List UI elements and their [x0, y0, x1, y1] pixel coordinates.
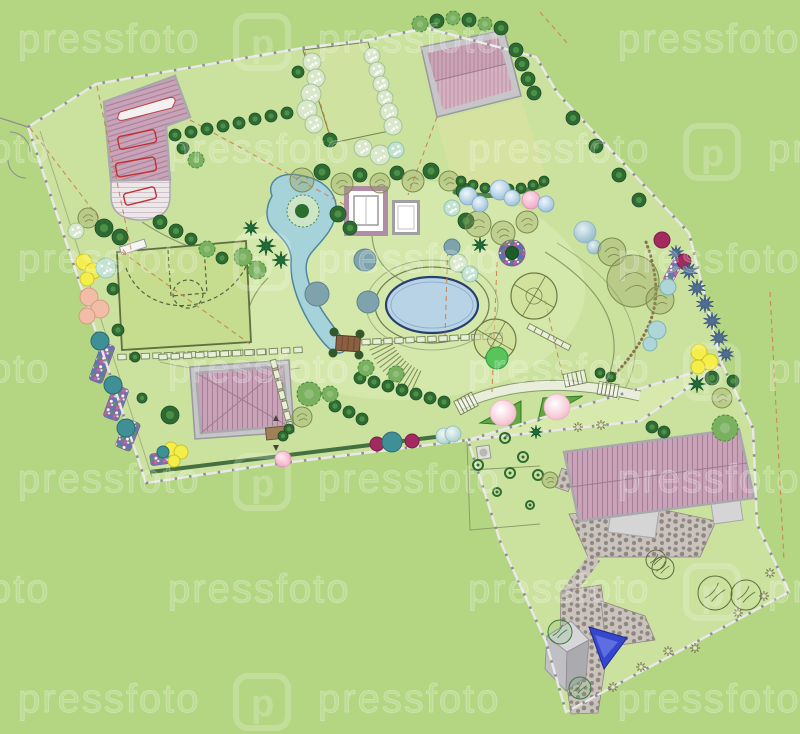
flora-con [153, 215, 167, 229]
flora-decid [712, 415, 738, 441]
stock-photo-landscape-plan: pressfotopressfotopressfotoppressfotopre… [0, 0, 800, 734]
flora-con [353, 168, 367, 182]
flora-con [112, 324, 124, 336]
watermark-text: pressfoto [168, 127, 351, 171]
flora-con [658, 426, 670, 438]
watermark-logo-letter: p [251, 683, 274, 725]
flora-con [438, 396, 450, 408]
pond-island-planting [295, 204, 309, 218]
flora-con [424, 392, 436, 404]
garage-driveway [111, 180, 170, 220]
flora-con [456, 176, 466, 186]
flora-con [356, 413, 368, 425]
watermark-text: pressfoto [0, 127, 51, 171]
flora-slate [357, 291, 379, 313]
watermark-text: pressfoto [768, 127, 800, 171]
flora-outg [548, 620, 572, 644]
watermark-logo-letter: p [701, 353, 724, 395]
flora-con [278, 431, 288, 441]
flora-scrib [542, 472, 558, 488]
flora-scrib [516, 211, 538, 233]
flora-outg [569, 677, 591, 699]
flora-sphSt [574, 221, 596, 243]
swimming-pool [386, 277, 478, 333]
flora-con [137, 393, 147, 403]
flora-con [161, 406, 179, 424]
watermark-logo-letter: p [251, 463, 274, 505]
round-flower-bed-center [506, 247, 519, 260]
flora-mint [388, 142, 404, 158]
watermark-logo-letter: p [251, 243, 274, 285]
flora-con [646, 421, 658, 433]
flora-con [632, 193, 646, 207]
watermark-logo-letter: p [701, 573, 724, 615]
watermark-text: pressfoto [618, 457, 800, 501]
flora-star [690, 643, 700, 653]
flora-con [368, 376, 380, 388]
flora-con [509, 43, 523, 57]
flora-con [130, 352, 140, 362]
flora-star [608, 682, 618, 692]
flora-con [265, 110, 277, 122]
flora-big [511, 273, 557, 319]
flora-con [516, 183, 526, 193]
watermark-text: pressfoto [18, 457, 201, 501]
flora-slate [305, 282, 329, 306]
flora-decid [199, 241, 215, 257]
flora-teal [117, 419, 135, 437]
watermark-logo-letter: p [701, 133, 724, 175]
flora-con [396, 384, 408, 396]
flora-sphG [490, 400, 516, 426]
flora-decid [388, 366, 404, 382]
flora-speck [354, 139, 372, 157]
flora-con [515, 57, 529, 71]
flora-tealp [660, 279, 676, 295]
pavilion-small [394, 202, 419, 234]
flora-sphB [538, 196, 554, 212]
flora-con [281, 107, 293, 119]
watermark-text: pressfoto [768, 567, 800, 611]
flora-scrib [290, 168, 314, 192]
flora-con [382, 380, 394, 392]
flora-con [343, 406, 355, 418]
flora-con [539, 176, 549, 186]
flora-star [596, 420, 606, 430]
flora-con [390, 166, 404, 180]
flora-speck [370, 145, 390, 165]
flora-con [330, 206, 346, 222]
flora-scrib [292, 407, 312, 427]
flora-con [566, 111, 580, 125]
flora-con [216, 252, 228, 264]
flora-sphP [522, 191, 540, 209]
watermark-text: pressfoto [618, 677, 800, 721]
flora-teal [91, 332, 109, 350]
landscape-plan: pressfotopressfotopressfotoppressfotopre… [0, 0, 800, 734]
watermark-text: pressfoto [168, 347, 351, 391]
watermark-text: pressfoto [468, 127, 651, 171]
watermark-text: pressfoto [0, 347, 51, 391]
flora-star [636, 662, 646, 672]
flora-con [423, 163, 439, 179]
watermark-text: pressfoto [168, 567, 351, 611]
flora-con [169, 224, 183, 238]
flora-sphB [504, 190, 520, 206]
flora-con [95, 219, 113, 237]
watermark-logo-letter: p [251, 23, 274, 65]
flora-mag [405, 434, 419, 448]
flora-con [527, 86, 541, 100]
flora-speck [373, 76, 389, 92]
flora-scrib [331, 173, 353, 195]
flora-sphG [544, 394, 570, 420]
watermark-text: pressfoto [618, 17, 800, 61]
flora-speck [369, 62, 385, 78]
flora-teal [104, 376, 122, 394]
watermark-text: pressfoto [318, 237, 501, 281]
flora-star [573, 422, 583, 432]
flora-con [480, 183, 490, 193]
flora-con [343, 221, 357, 235]
watermark-text: pressfoto [318, 457, 501, 501]
flora-sphTp [445, 426, 461, 442]
watermark-text: pressfoto [768, 347, 800, 391]
flora-con [410, 388, 422, 400]
flora-con [249, 113, 261, 125]
flora-scrib [370, 173, 390, 193]
flora-speck [384, 117, 402, 135]
watermark-text: pressfoto [468, 347, 651, 391]
flora-con [107, 283, 119, 295]
flora-tealp [648, 321, 666, 339]
flora-mint [444, 200, 460, 216]
watermark-text: pressfoto [468, 567, 651, 611]
watermark-text: pressfoto [18, 237, 201, 281]
watermark-text: pressfoto [318, 17, 501, 61]
watermark-text: pressfoto [0, 567, 51, 611]
flora-scrib [465, 211, 491, 237]
flora-con [521, 72, 535, 86]
flora-scrib [402, 170, 424, 192]
flora-con [292, 66, 304, 78]
flora-star [663, 646, 673, 656]
flora-palm [529, 425, 543, 439]
watermark-text: pressfoto [318, 677, 501, 721]
flora-sphB [472, 196, 488, 212]
flora-con [528, 180, 538, 190]
flora-teal [382, 432, 402, 452]
flora-peach [79, 308, 95, 324]
watermark-text: pressfoto [18, 677, 201, 721]
watermark-text: pressfoto [618, 237, 800, 281]
watermark-text: pressfoto [18, 17, 201, 61]
flora-decid [358, 360, 374, 376]
